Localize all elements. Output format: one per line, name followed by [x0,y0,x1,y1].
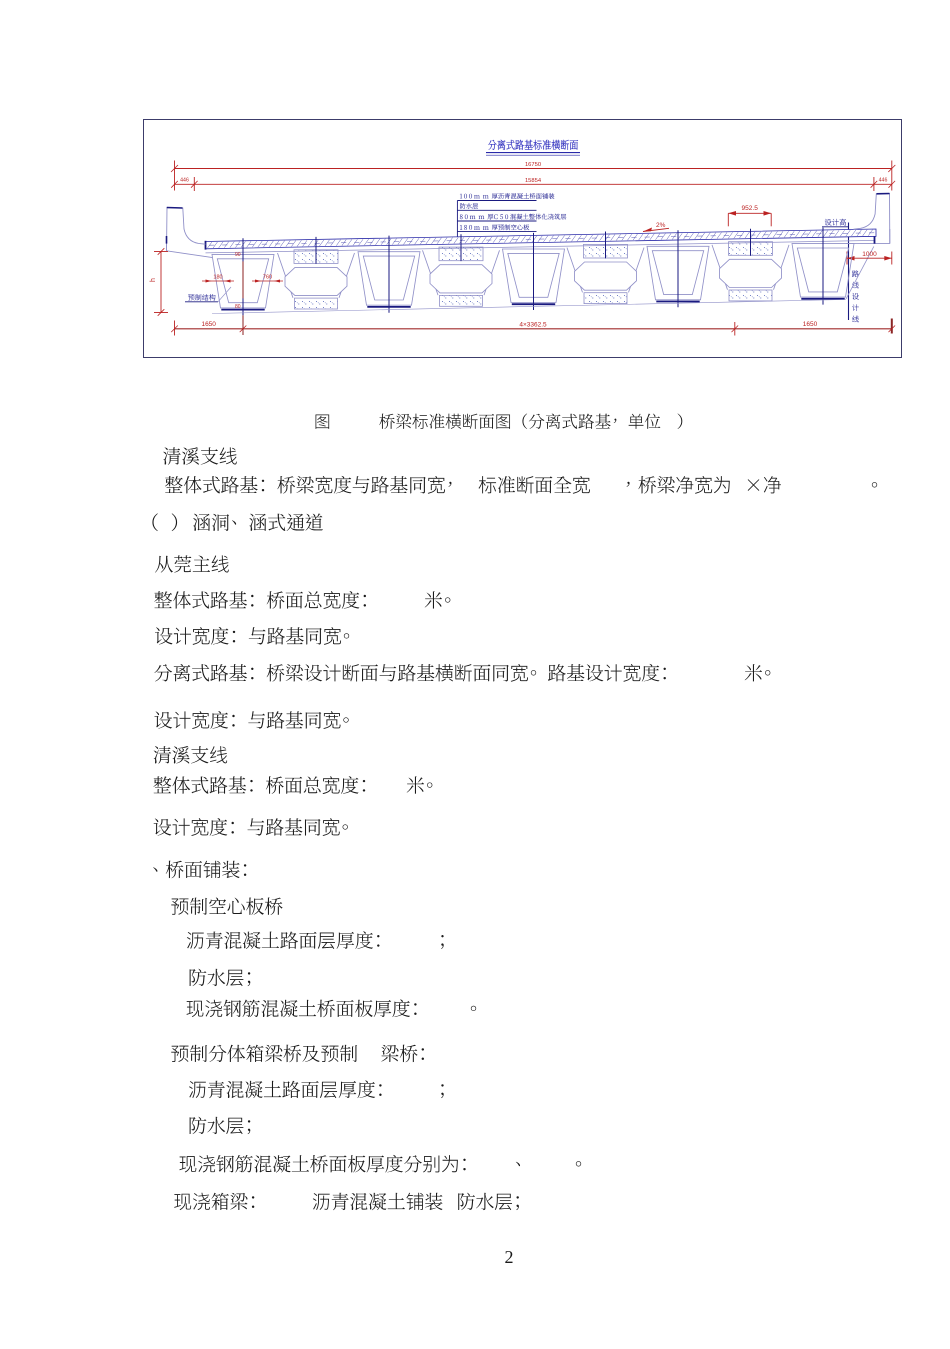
svg-text:180: 180 [213,275,222,281]
svg-text:80: 80 [235,304,241,310]
svg-text:1650: 1650 [201,321,216,328]
svg-text:h: h [150,278,157,282]
svg-text:760: 760 [263,275,272,281]
svg-text:90: 90 [235,252,241,258]
svg-text:446: 446 [180,178,189,184]
svg-text:952.5: 952.5 [742,205,759,212]
svg-text:446: 446 [879,178,888,184]
svg-text:2%: 2% [656,222,666,229]
svg-text:16750: 16750 [525,162,541,168]
svg-text:2: 2 [505,1247,514,1267]
svg-text:15854: 15854 [525,178,542,184]
svg-text:4×3362.5: 4×3362.5 [519,322,547,329]
svg-text:1000: 1000 [862,251,877,258]
svg-text:1650: 1650 [803,321,818,328]
